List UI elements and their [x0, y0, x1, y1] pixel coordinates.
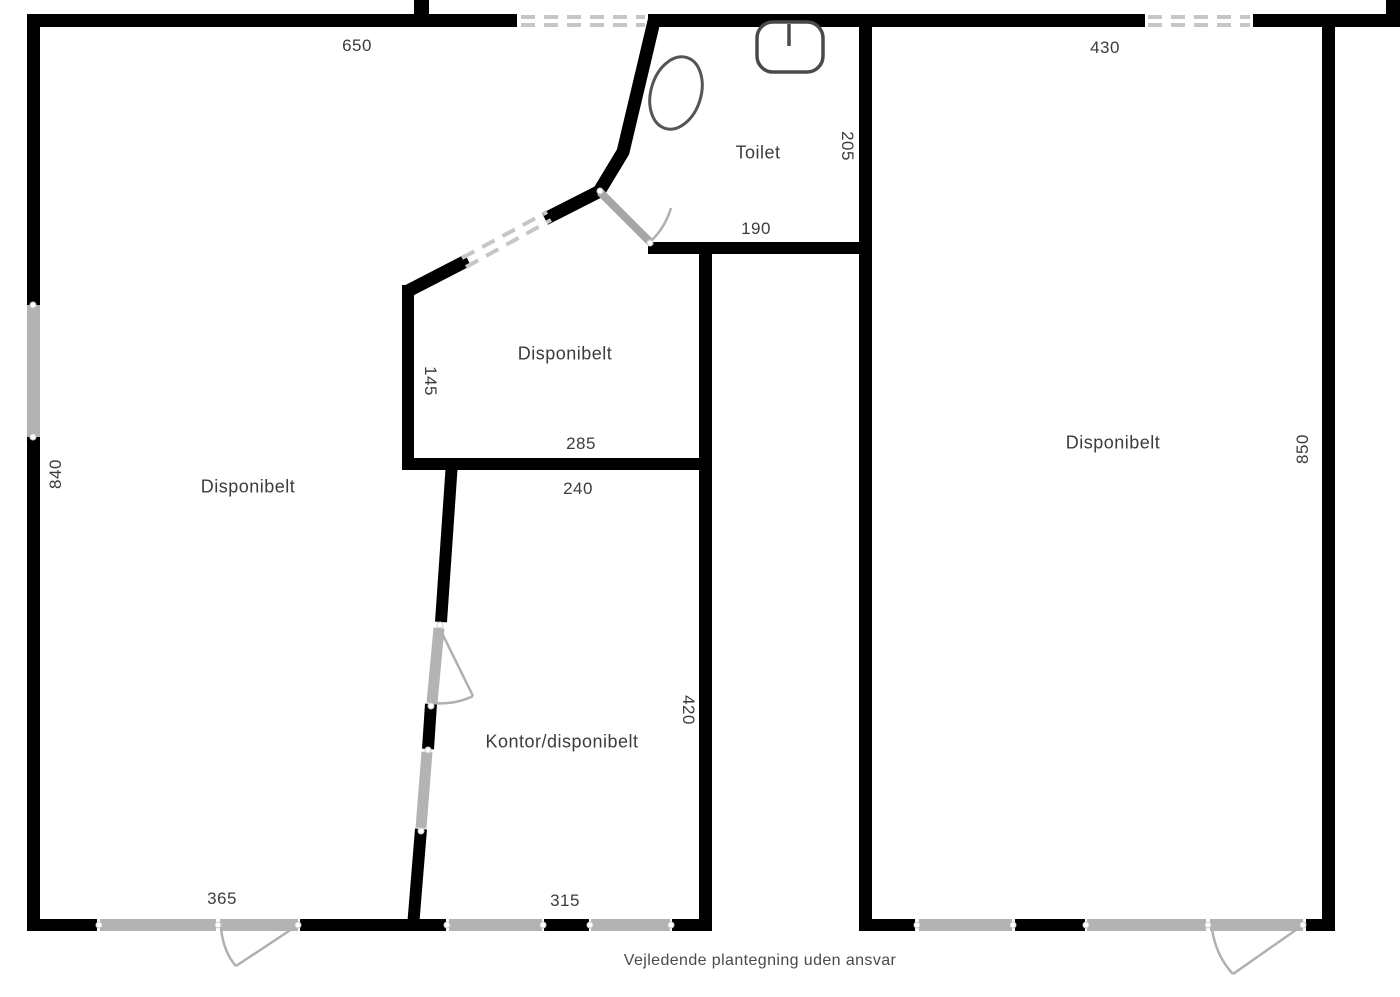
wall-office-right — [699, 248, 712, 931]
window-office-wall — [421, 752, 427, 828]
door-panel-office — [432, 628, 439, 703]
wall-top-left — [27, 14, 517, 27]
window-bottom-2 — [449, 919, 542, 931]
joint-dot — [668, 922, 674, 928]
joint-dot — [587, 922, 593, 928]
wall-bottom-a — [27, 919, 97, 931]
door-panel-bottom-right — [1210, 919, 1303, 931]
wall-top-middle — [648, 14, 1145, 27]
joint-dot — [96, 922, 102, 928]
wall-stub-top-1 — [414, 0, 429, 15]
joint-dot — [597, 188, 603, 194]
joint-dot — [1300, 922, 1306, 928]
wall-bottom-c — [544, 919, 589, 931]
window-bottom-1 — [100, 919, 216, 931]
wall-divider — [859, 14, 872, 931]
wall-office-left-b — [428, 704, 431, 749]
room-label-toilet: Toilet — [735, 143, 780, 164]
wall-joints — [30, 188, 1306, 928]
room-label-left: Disponibelt — [201, 477, 296, 498]
door-leaf-bottom-left — [236, 925, 298, 966]
doors — [221, 192, 1303, 974]
joint-dot — [30, 302, 36, 308]
outer-walls — [27, 0, 1400, 931]
diagonal-walls — [406, 17, 655, 292]
wall-toilet-slant — [600, 17, 655, 190]
interior-walls — [402, 242, 872, 931]
wall-office-left-c — [413, 829, 421, 927]
door-leaf-bottom-right — [1233, 925, 1303, 974]
dimension-middle-width: 285 — [566, 434, 596, 454]
sink-fixture-icon — [641, 50, 710, 135]
dimension-middle-height: 145 — [420, 366, 440, 396]
dimension-bottom-middle: 315 — [550, 891, 580, 911]
opening-diagonal-2 — [466, 220, 551, 267]
joint-dot — [540, 922, 546, 928]
disclaimer-text: Vejledende plantegning uden ansvar — [624, 952, 896, 970]
joint-dot — [1205, 922, 1211, 928]
wall-diagonal-low — [406, 260, 468, 292]
wall-left-upper — [27, 14, 40, 305]
window-bottom-3 — [591, 919, 670, 931]
window-bottom-4 — [919, 919, 1012, 931]
wall-middle-left — [402, 285, 414, 464]
door-panel-bottom-left — [220, 919, 298, 931]
door-arc-toilet — [650, 208, 671, 242]
wall-left-lower — [27, 437, 40, 931]
door-leaf-office — [439, 627, 473, 696]
wall-right — [1322, 14, 1335, 931]
wall-bottom-b — [300, 919, 446, 931]
room-label-right: Disponibelt — [1066, 433, 1161, 454]
wall-office-left-a — [441, 462, 452, 622]
door-arc-bottom-right — [1212, 929, 1233, 974]
dimension-bottom-left: 365 — [207, 889, 237, 909]
wall-diagonal-high — [545, 190, 602, 219]
joint-dot — [425, 747, 431, 753]
joint-dot — [428, 703, 434, 709]
door-arc-office — [432, 696, 473, 703]
dimension-right-height: 850 — [1293, 434, 1313, 464]
door-arc-bottom-left — [221, 929, 236, 966]
joint-dot — [647, 240, 653, 246]
window-bottom-5 — [1087, 919, 1206, 931]
dimension-toilet-height: 205 — [837, 131, 857, 161]
windows — [27, 305, 1303, 931]
wall-stub-top-2 — [1386, 0, 1400, 15]
joint-dot — [30, 434, 36, 440]
door-leaf-toilet — [600, 192, 650, 242]
window-left-wall — [27, 305, 40, 437]
joint-dot — [914, 922, 920, 928]
dimension-left-height: 840 — [46, 459, 66, 489]
joint-dot — [1010, 922, 1016, 928]
room-label-middle: Disponibelt — [518, 344, 613, 365]
dimension-top-right: 430 — [1090, 38, 1120, 58]
dimension-top-left: 650 — [342, 36, 372, 56]
joint-dot — [295, 922, 301, 928]
opening-diagonal-1 — [462, 212, 547, 258]
floor-plan: 650 430 Toilet 205 190 Disponibelt 145 2… — [0, 0, 1400, 997]
joint-dot — [418, 828, 424, 834]
floor-plan-canvas — [0, 0, 1400, 997]
dimension-office-height: 420 — [678, 695, 698, 725]
joint-dot — [437, 622, 443, 628]
joint-dot — [444, 922, 450, 928]
dimension-office-top-width: 240 — [563, 479, 593, 499]
room-label-office: Kontor/disponibelt — [485, 732, 638, 753]
dimension-toilet-width: 190 — [741, 219, 771, 239]
fixtures — [641, 22, 823, 136]
joint-dot — [215, 922, 221, 928]
wall-toilet-bottom — [648, 242, 872, 254]
wall-bottom-f — [1015, 919, 1085, 931]
joint-dot — [1083, 922, 1089, 928]
